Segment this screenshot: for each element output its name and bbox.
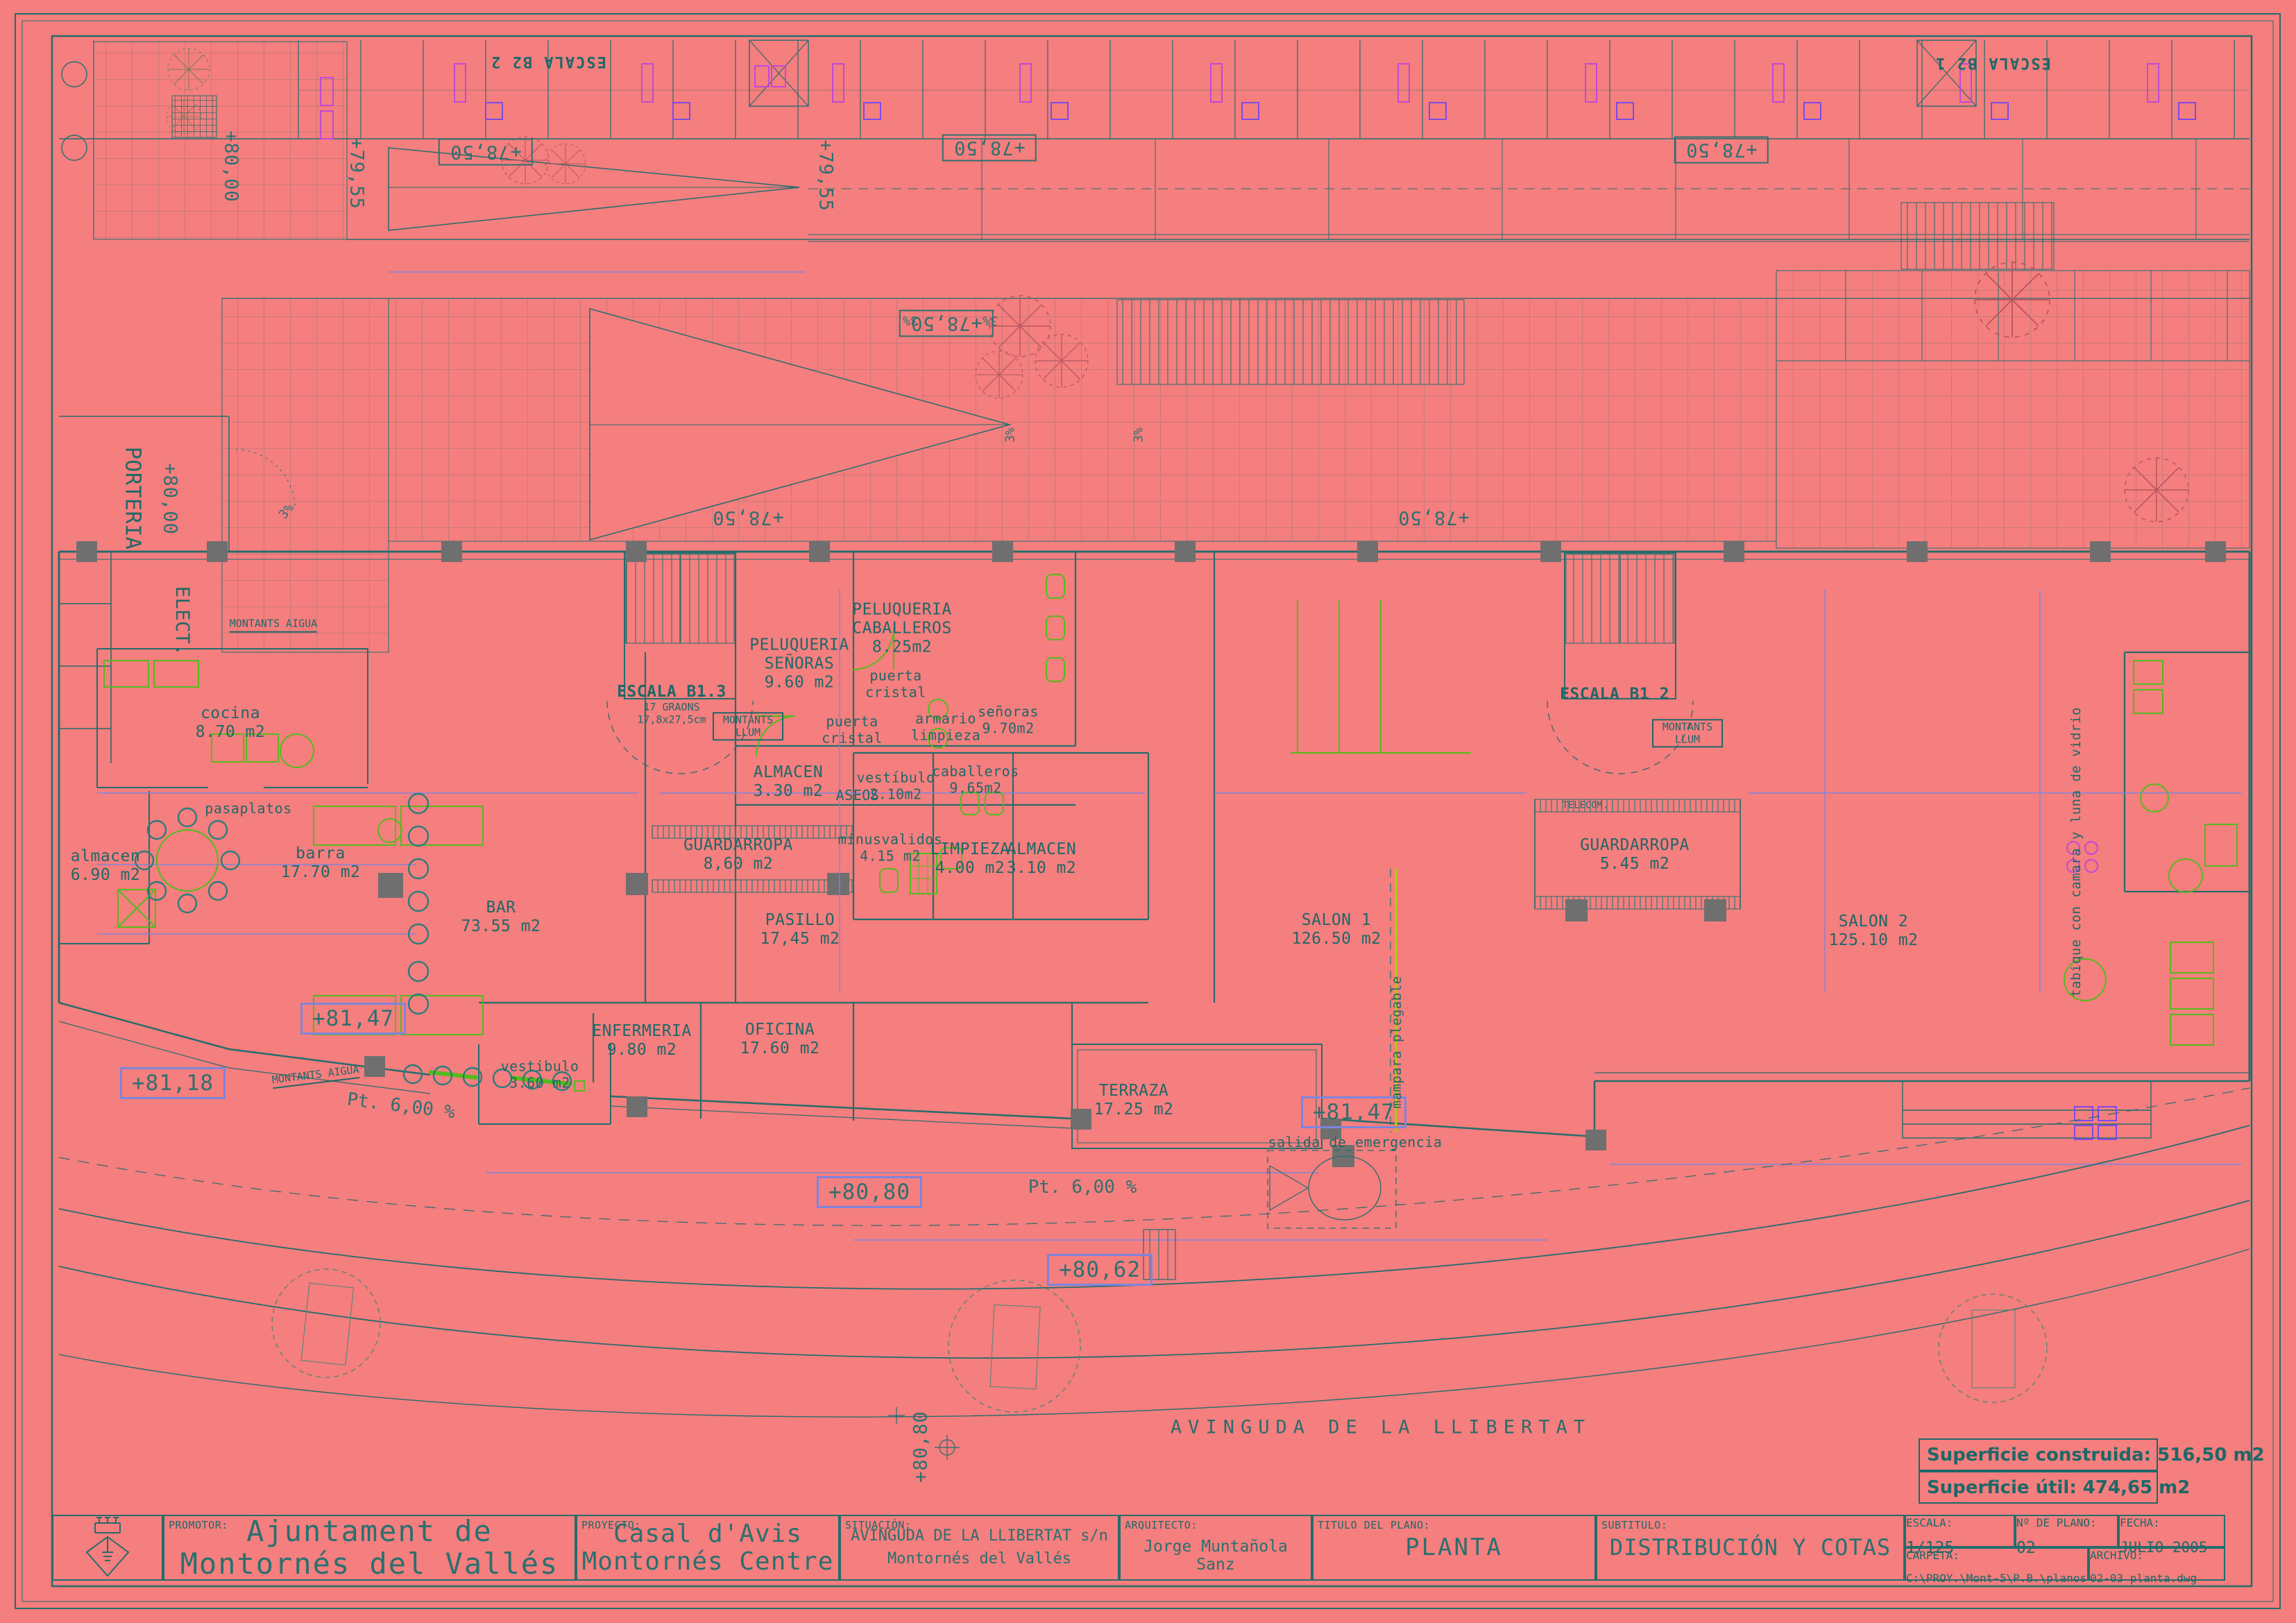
room-label-caballeros: caballeros9.65m2 bbox=[932, 763, 1019, 796]
room-label-peluqueria-caballeros: PELUQUERIA CABALLEROS8.25m2 bbox=[829, 600, 975, 656]
room-label-oficina: OFICINA17.60 m2 bbox=[740, 1021, 820, 1058]
montants-llum-b: MONTANTS LLUM bbox=[1652, 719, 1723, 747]
level-80-62-box: +80,62 bbox=[1047, 1254, 1153, 1286]
level-79-55-left: +79,55 bbox=[346, 137, 368, 210]
level-81-18: +81,18 bbox=[120, 1067, 226, 1099]
slope-3pct-b: 3% bbox=[1003, 427, 1018, 443]
slope-pt600-center: Pt. 6,00 % bbox=[1028, 1177, 1137, 1198]
stair-b12-label: ESCALA B1 2 bbox=[1560, 685, 1669, 704]
plan-linework bbox=[0, 0, 2296, 1623]
room-label-salon2: SALON 2125.10 m2 bbox=[1828, 912, 1918, 950]
escala-cell: ESCALA: 1/125 bbox=[1905, 1515, 2015, 1547]
room-label-almacen-310: ALMACEN3.10 m2 bbox=[1007, 840, 1076, 878]
promotor-cell: PROMOTOR: Ajuntament de Montornés del Va… bbox=[163, 1515, 576, 1581]
room-label-guardarropa-545: GUARDARROPA5.45 m2 bbox=[1580, 836, 1690, 874]
fecha-cell: FECHA: JULIO 2005 bbox=[2118, 1515, 2225, 1547]
num-plano-cell: Nº DE PLANO: 02 bbox=[2015, 1515, 2118, 1547]
slope-3pct-e: 3% bbox=[983, 314, 998, 328]
room-label-bar: BAR73.55 m2 bbox=[461, 899, 541, 936]
situacion-line2: Montornés del Vallés bbox=[887, 1551, 1071, 1567]
armario-limpieza-label: armario limpieza bbox=[904, 711, 987, 743]
num-plano-label: Nº DE PLANO: bbox=[2016, 1516, 2097, 1529]
subtitulo-value: DISTRIBUCIÓN Y COTAS bbox=[1597, 1516, 1903, 1579]
tabique-vidrio-label: tabique con camara y luna de vidrio bbox=[2068, 707, 2084, 997]
title-block: PROMOTOR: Ajuntament de Montornés del Va… bbox=[52, 1515, 2225, 1581]
arquitecto-value: Jorge Muntañola Sanz bbox=[1121, 1516, 1311, 1579]
situacion-line1: AVINGUDA DE LA LLIBERTAT s/n bbox=[851, 1528, 1108, 1545]
room-label-limpieza: LIMPIEZA4.00 m2 bbox=[930, 840, 1010, 878]
elect-label: ELECT. bbox=[171, 586, 193, 656]
level-78-50-c: +78,50 bbox=[1674, 137, 1769, 164]
room-label-terraza: TERRAZA17.25 m2 bbox=[1094, 1082, 1174, 1119]
level-78-50-e: +78,50 bbox=[712, 507, 784, 529]
telecom-label: TELECOM. bbox=[1563, 800, 1609, 810]
level-79-55-right: +79,55 bbox=[815, 139, 837, 212]
archivo-cell: ARCHIVO: 02-03 planta.dwg bbox=[2089, 1547, 2225, 1581]
room-label-pasillo: PASILLO17,45 m2 bbox=[760, 911, 840, 949]
puerta-cristal-b: puerta cristal bbox=[817, 713, 887, 746]
stair-b13-label: ESCALA B1.3 17 GRAONS 17,8x27,5cm bbox=[617, 683, 726, 726]
proyecto-cell: PROYECTO: Casal d'Avis Montornés Centre bbox=[576, 1515, 840, 1581]
ajuntament-logo bbox=[53, 1516, 162, 1579]
level-78-50-f: +78,50 bbox=[1397, 507, 1470, 529]
level-78-50-b: +78,50 bbox=[942, 135, 1037, 162]
archivo-value: 02-03 planta.dwg bbox=[2090, 1562, 2224, 1585]
mampara-plegable-label: mampara plegable bbox=[1389, 976, 1404, 1108]
logo-cell bbox=[52, 1515, 163, 1581]
porteria-label: PORTERIA bbox=[120, 447, 144, 550]
level-80-80-box: +80,80 bbox=[817, 1176, 922, 1208]
upper-stair-left-label: ESCALA B2 2 bbox=[490, 52, 606, 70]
floor-plan-sheet: PORTERIA ELECT. +80,00 +80,00 +79,55 +79… bbox=[0, 0, 2296, 1623]
room-label-guardarropa-860: GUARDARROPA8,60 m2 bbox=[683, 836, 793, 874]
level-80-00: +80,00 bbox=[160, 463, 181, 535]
street-trees bbox=[272, 1269, 2047, 1412]
columns bbox=[76, 541, 2226, 1167]
montants-aigua-a: MONTANTS AIGUA bbox=[230, 618, 317, 633]
room-label-barra: barra17.70 m2 bbox=[281, 844, 361, 882]
titulo-cell: TITULO DEL PLANO: PLANTA bbox=[1312, 1515, 1596, 1581]
subtitulo-cell: SUBTITULO: DISTRIBUCIÓN Y COTAS bbox=[1596, 1515, 1905, 1581]
surface-util-box: Superficie útil: 474,65 m2 bbox=[1919, 1471, 2158, 1504]
level-81-47-a: +81,47 bbox=[300, 1003, 406, 1035]
pasaplatos-label: pasaplatos bbox=[205, 801, 291, 817]
fecha-label: FECHA: bbox=[2120, 1516, 2160, 1529]
room-label-almacen-330: ALMACEN3.30 m2 bbox=[754, 763, 823, 801]
street-layer bbox=[59, 1088, 2250, 1460]
carpeta-cell: CARPETA: C:\PROY.\Mont-5\P.B.\planos bbox=[1905, 1547, 2089, 1581]
puerta-cristal-a: puerta cristal bbox=[861, 668, 930, 700]
salida-emergencia-label: salida de emergencia bbox=[1268, 1135, 1443, 1151]
street-name-label: AVINGUDA DE LA LLIBERTAT bbox=[1171, 1417, 1591, 1438]
situacion-cell: SITUACIÓN: AVINGUDA DE LA LLIBERTAT s/n … bbox=[840, 1515, 1119, 1581]
escala-label: ESCALA: bbox=[1906, 1516, 1953, 1529]
room-label-almacen-bar: almacen6.90 m2 bbox=[71, 847, 140, 885]
level-80-80-street: +80,80 bbox=[910, 1411, 932, 1483]
seating-circles bbox=[135, 794, 571, 1090]
upper-stair-right-label: ESCALA B2 1 bbox=[1934, 53, 2051, 71]
room-label-salon1: SALON 1126.50 m2 bbox=[1291, 911, 1381, 949]
room-label-vestibulo-entrada: vestibulo3.60 m2 bbox=[501, 1058, 579, 1091]
carpeta-value: C:\PROY.\Mont-5\P.B.\planos bbox=[1906, 1562, 2087, 1585]
proyecto-value: Casal d'Avis Montornés Centre bbox=[577, 1516, 838, 1579]
room-label-enfermeria: ENFERMERIA9.80 m2 bbox=[592, 1022, 691, 1060]
arquitecto-cell: ARQUITECTO: Jorge Muntañola Sanz bbox=[1119, 1515, 1312, 1581]
room-label-cocina: cocina8.70 m2 bbox=[196, 704, 265, 742]
slope-3pct-d: 3% bbox=[903, 314, 918, 328]
furniture-green bbox=[104, 575, 2237, 1091]
archivo-label: ARCHIVO: bbox=[2090, 1549, 2143, 1562]
level-78-50-a: +78,50 bbox=[439, 139, 533, 166]
montants-llum-a: MONTANTS LLUM bbox=[713, 712, 783, 740]
room-label-minusvalidos: minusvalidos4.15 m2 bbox=[838, 831, 943, 864]
carpeta-label: CARPETA: bbox=[1906, 1549, 1959, 1562]
surface-construida-box: Superficie construida: 516,50 m2 bbox=[1919, 1438, 2158, 1471]
titulo-value: PLANTA bbox=[1313, 1516, 1595, 1579]
level-80-00-top: +80,00 bbox=[221, 130, 242, 203]
promotor-value: Ajuntament de Montornés del Vallés bbox=[164, 1516, 575, 1579]
room-label-vestibulo-aseos: vestíbulo2.10m2 bbox=[857, 770, 935, 802]
slope-3pct-c: 3% bbox=[1132, 427, 1146, 443]
